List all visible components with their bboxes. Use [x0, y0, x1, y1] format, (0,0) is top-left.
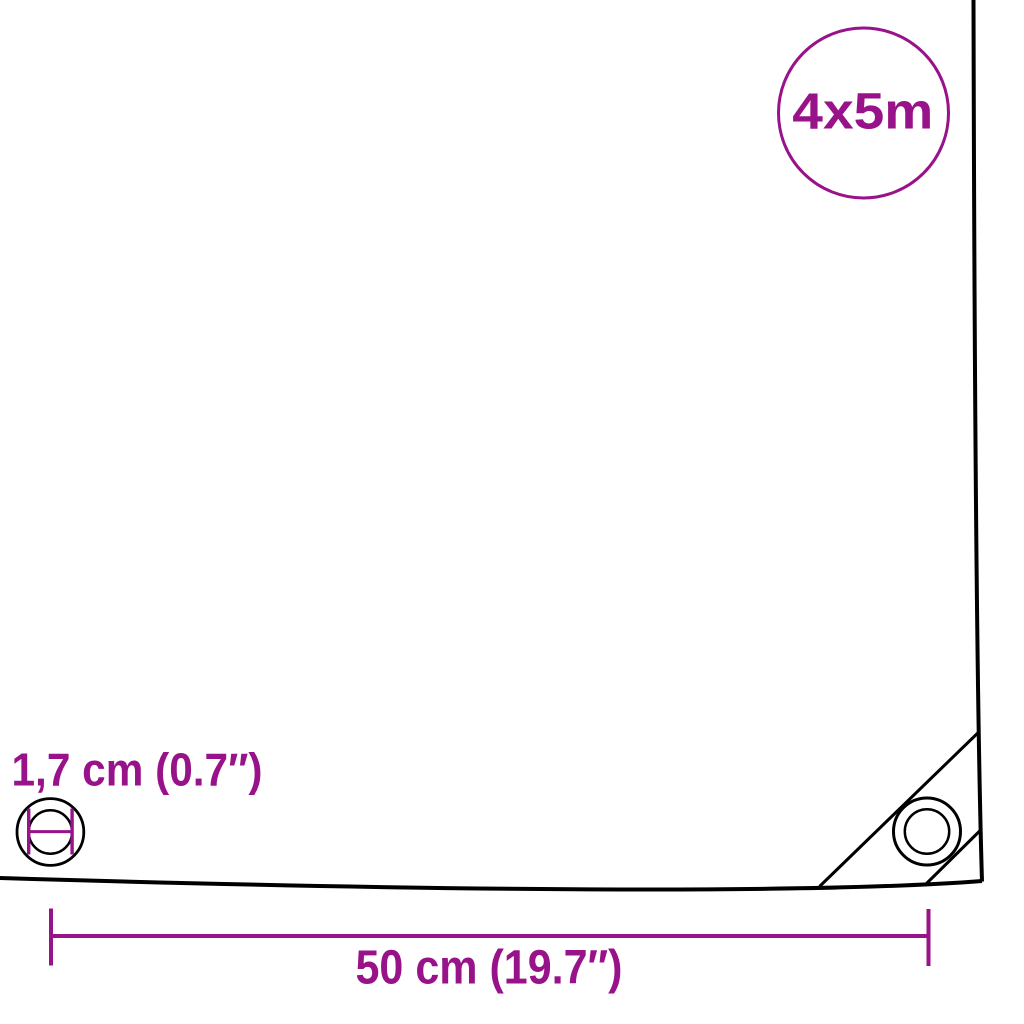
svg-text:4x5m: 4x5m	[792, 83, 933, 140]
svg-text:1,7 cm (0.7″): 1,7 cm (0.7″)	[12, 744, 263, 796]
svg-text:50 cm (19.7″): 50 cm (19.7″)	[356, 942, 623, 995]
